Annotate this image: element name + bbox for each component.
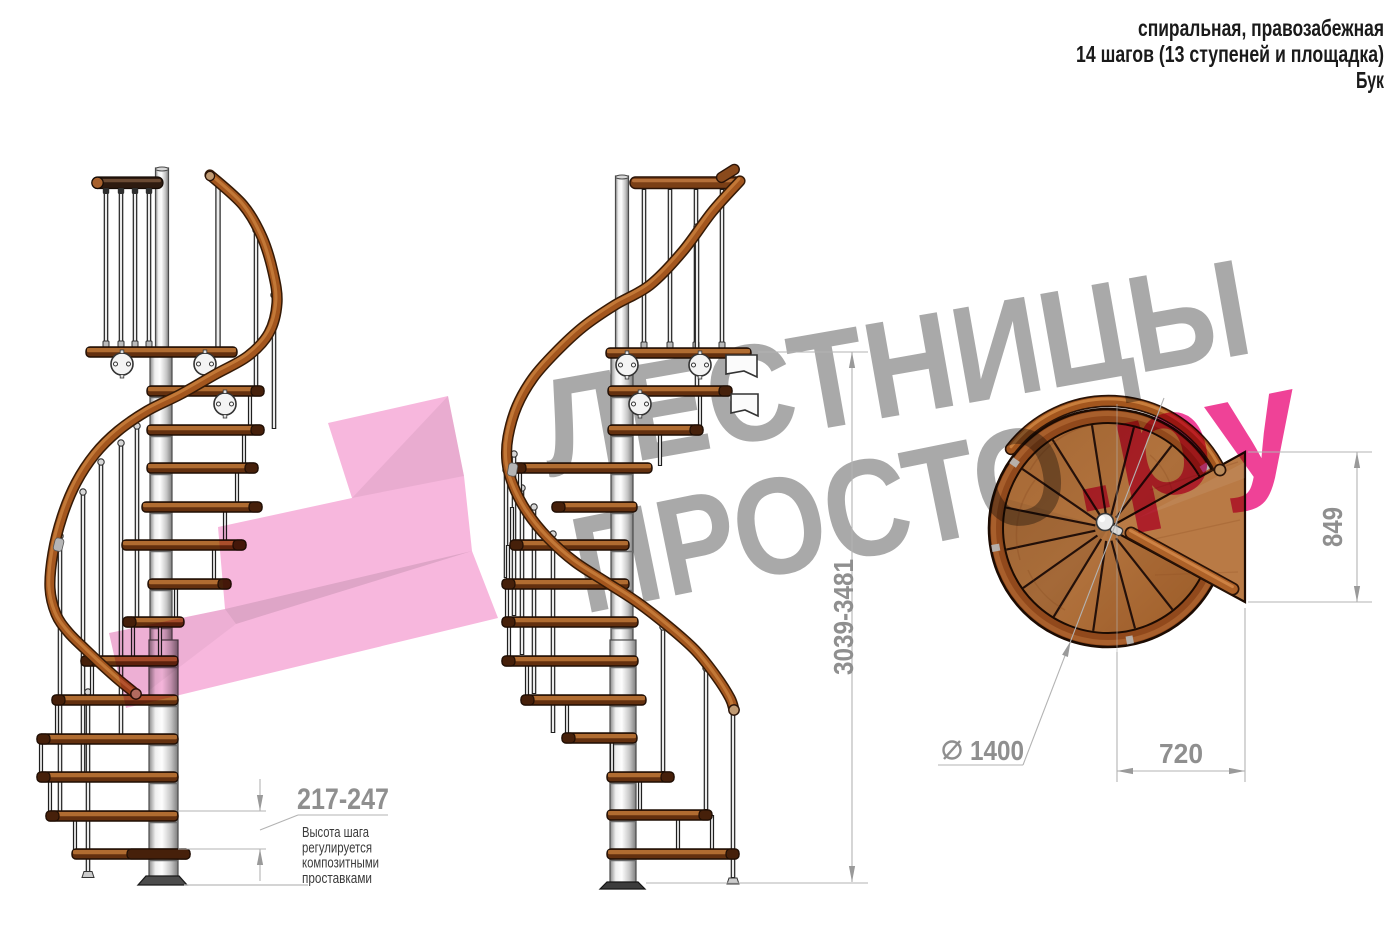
svg-text:217-247: 217-247 (297, 783, 389, 816)
svg-text:1400: 1400 (970, 735, 1024, 766)
svg-text:Высота шагарегулируетсякомпози: Высота шагарегулируетсякомпозитнымипрост… (302, 824, 379, 887)
svg-text:спиральная, правозабежная: спиральная, правозабежная (1138, 15, 1384, 41)
svg-text:849: 849 (1317, 507, 1348, 547)
svg-text:Бук: Бук (1356, 67, 1384, 93)
svg-text:14 шагов (13 ступеней и площад: 14 шагов (13 ступеней и площадка) (1076, 41, 1384, 67)
svg-text:720: 720 (1159, 738, 1203, 769)
svg-text:3039-3481: 3039-3481 (828, 559, 859, 675)
